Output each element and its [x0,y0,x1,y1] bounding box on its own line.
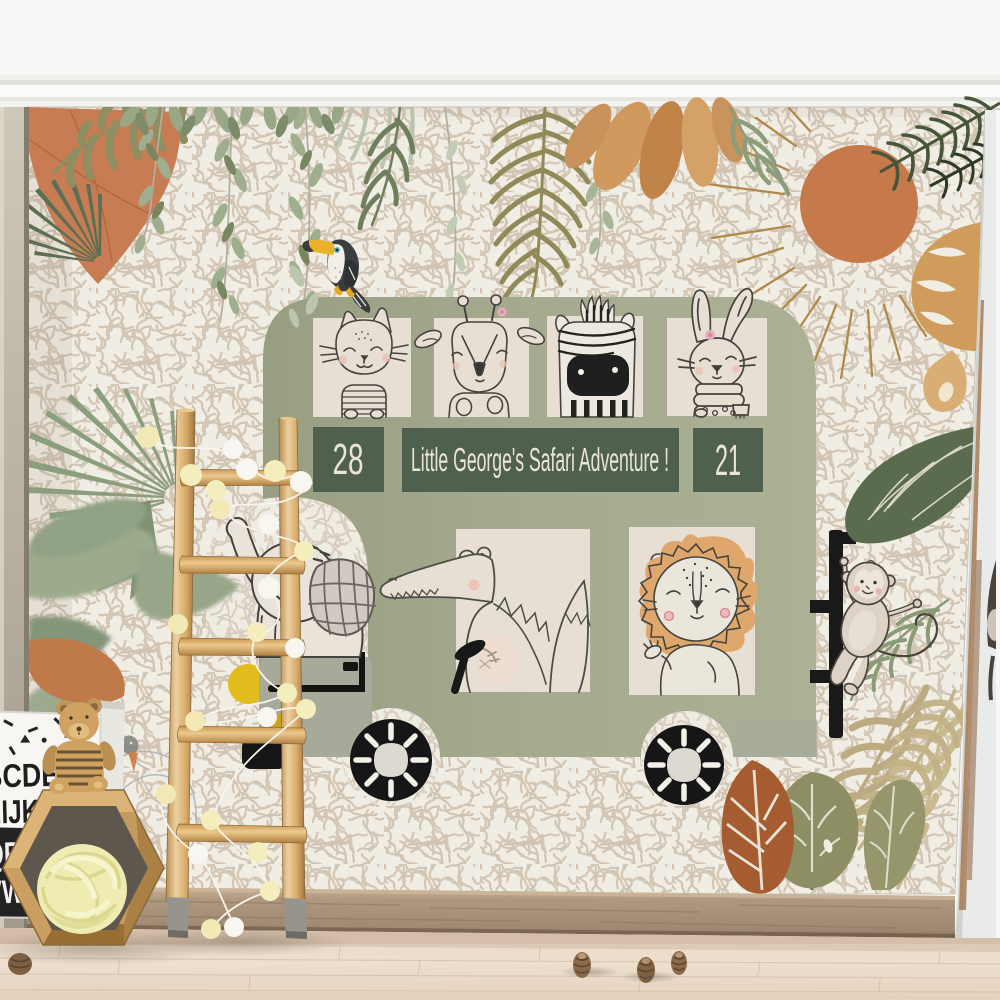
svg-text:Little George's Safari Adventu: Little George's Safari Adventure ! [411,441,669,478]
svg-text:21: 21 [715,436,741,485]
svg-text:28: 28 [333,435,364,484]
